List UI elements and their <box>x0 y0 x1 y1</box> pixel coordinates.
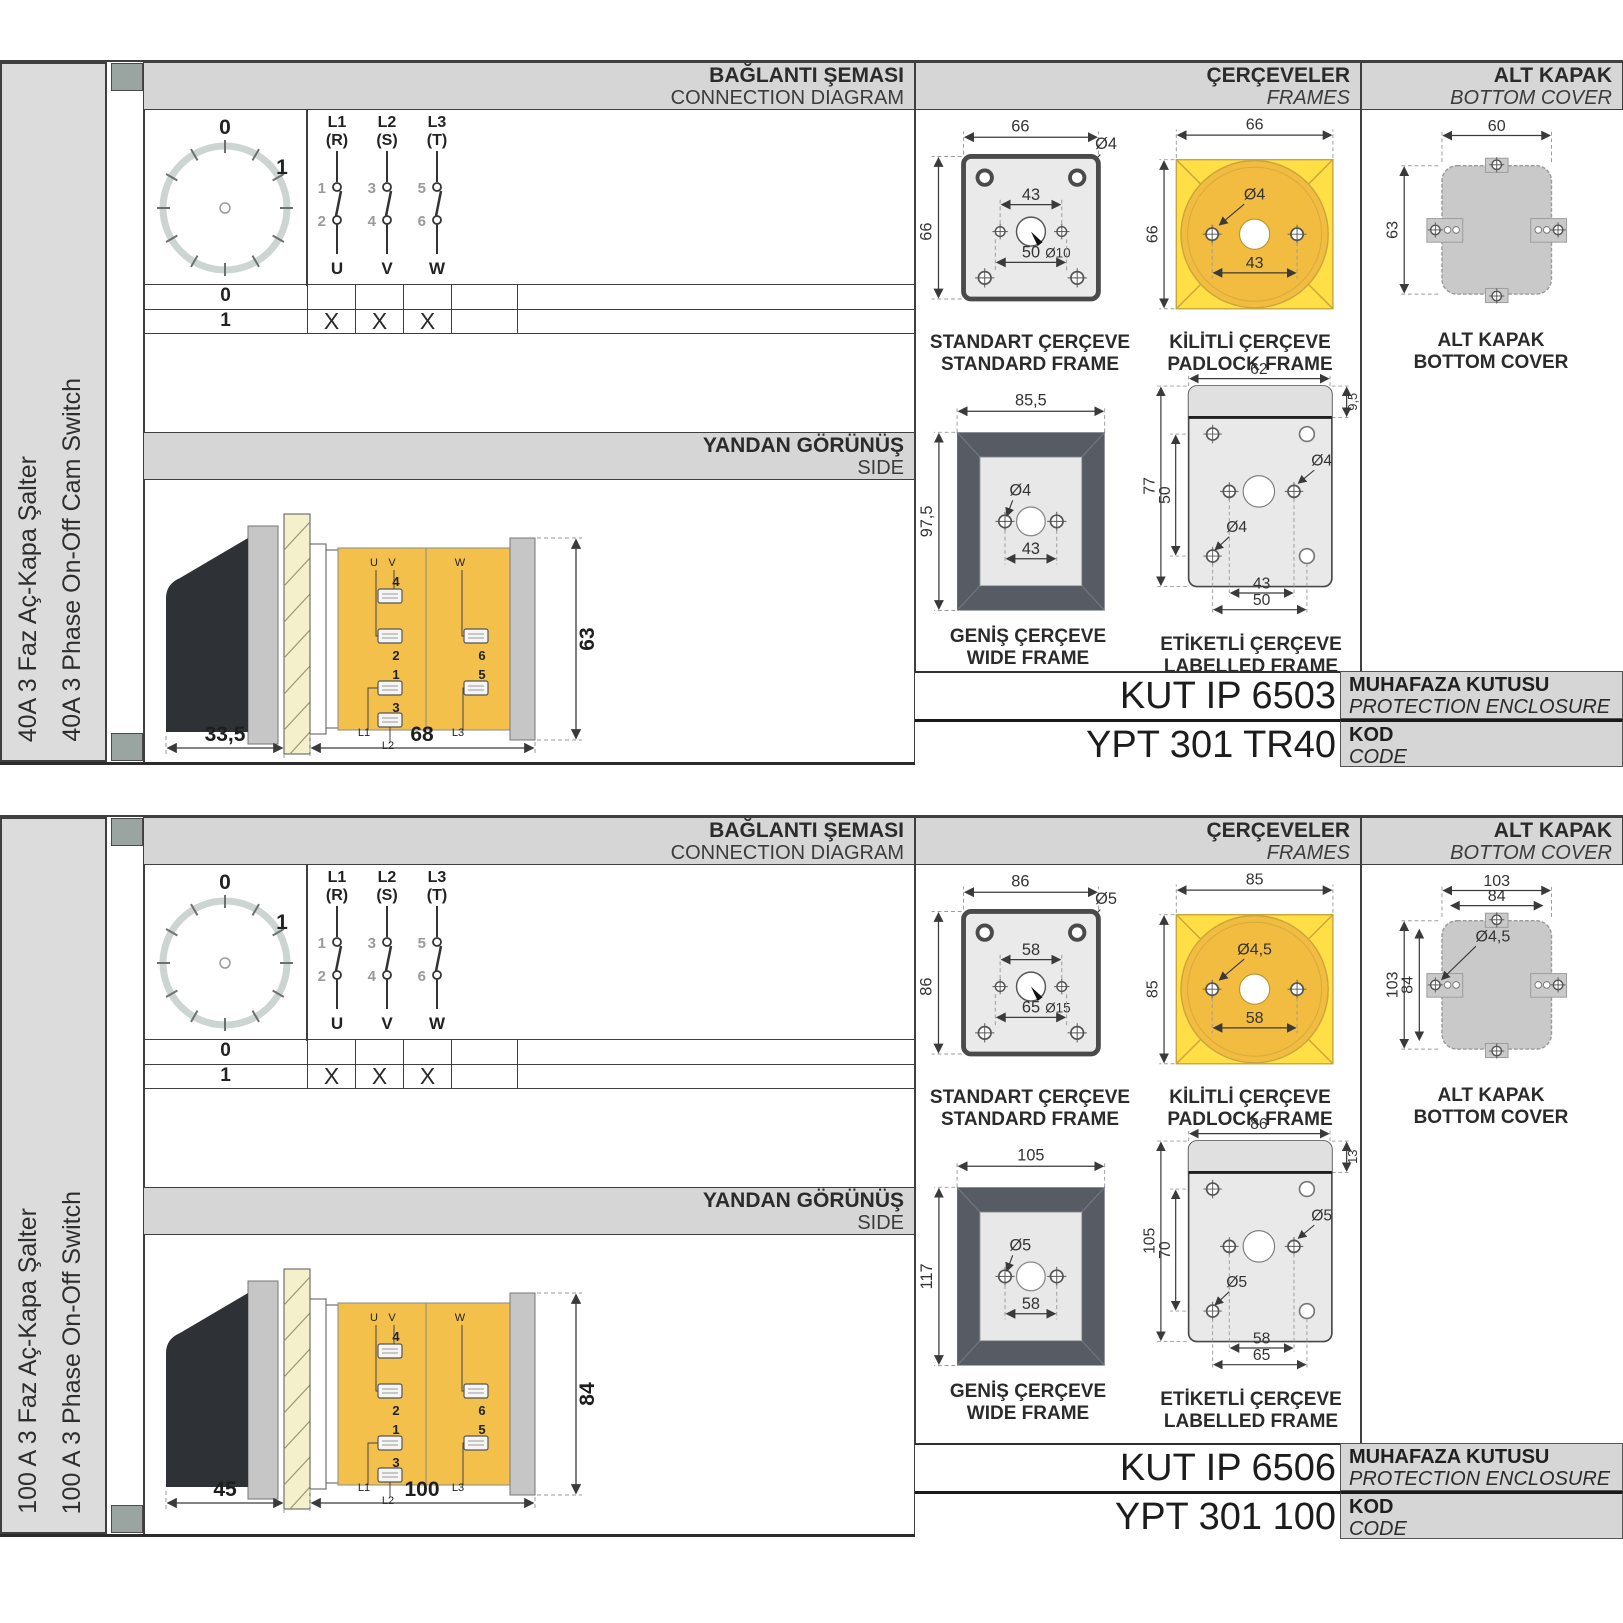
frames-header-en: FRAMES <box>916 842 1350 864</box>
svg-text:60: 60 <box>1488 117 1506 135</box>
svg-text:U: U <box>370 557 378 569</box>
svg-text:68: 68 <box>410 723 434 746</box>
product-section: 100 A 3 Faz Aç-Kapa Şalter 100 A 3 Phase… <box>0 815 1623 1537</box>
svg-text:58: 58 <box>1246 1009 1264 1027</box>
svg-text:66: 66 <box>1143 225 1161 243</box>
connection-header: BAĞLANTI ŞEMASI CONNECTION DIAGRAM <box>143 817 915 865</box>
spacer-inner <box>326 550 338 728</box>
wide-frame-caption: GENİŞ ÇERÇEVE WIDE FRAME <box>916 1381 1140 1425</box>
connection-header-en: CONNECTION DIAGRAM <box>144 87 904 109</box>
svg-text:L3: L3 <box>452 1482 464 1494</box>
standard-frame-caption: STANDART ÇERÇEVE STANDARD FRAME <box>918 332 1142 376</box>
svg-text:43: 43 <box>1246 254 1264 272</box>
table-row-0: 0 <box>144 285 914 309</box>
table-cell <box>404 285 452 309</box>
svg-text:L2: L2 <box>378 114 397 131</box>
padlock-frame-figure: 66 66 Ø4 43 <box>1148 116 1348 326</box>
labelled-frame-figure: 62 9,5 77 50 Ø4 Ø4 43 50 <box>1142 362 1360 630</box>
svg-text:4: 4 <box>392 1329 400 1344</box>
frames-header: ÇERÇEVELER FRAMES <box>915 817 1361 865</box>
cover-dim-w2: 84 <box>1451 887 1542 906</box>
table-cell <box>308 285 356 309</box>
cover-header: ALT KAPAK BOTTOM COVER <box>1361 817 1623 865</box>
product-title-en: 40A 3 Phase On-Off Cam Switch <box>58 378 87 742</box>
svg-text:V: V <box>381 1014 393 1033</box>
svg-text:84: 84 <box>576 1382 599 1406</box>
svg-text:70: 70 <box>1157 1241 1174 1259</box>
svg-text:Ø4,5: Ø4,5 <box>1237 940 1272 958</box>
svg-text:W: W <box>429 1014 446 1033</box>
product-title-en: 100 A 3 Phase On-Off Switch <box>58 1191 87 1514</box>
svg-text:L2: L2 <box>382 1495 394 1507</box>
registration-mark-bottom <box>111 733 143 761</box>
svg-text:Ø4: Ø4 <box>1311 453 1332 470</box>
svg-text:Ø4: Ø4 <box>1009 482 1031 500</box>
side-view-header-tr: YANDAN GÖRÜNÜŞ <box>144 1190 904 1212</box>
table-row-1: 1 X X X <box>144 309 914 333</box>
svg-text:Ø4: Ø4 <box>1095 135 1117 153</box>
svg-text:45: 45 <box>213 1478 237 1501</box>
svg-text:6: 6 <box>418 213 426 230</box>
table-cell-filler <box>518 310 914 333</box>
svg-text:2: 2 <box>318 213 326 230</box>
svg-text:Ø4: Ø4 <box>1244 185 1265 203</box>
switch-handle <box>166 1293 248 1487</box>
svg-text:L2: L2 <box>378 869 397 886</box>
svg-text:L3: L3 <box>452 727 464 739</box>
svg-text:(S): (S) <box>376 887 397 904</box>
frames-header-tr: ÇERÇEVELER <box>916 65 1350 87</box>
pole-l2: L2 (S) V 3 4 <box>368 114 398 278</box>
table-cell-spare <box>452 285 518 309</box>
dial-position-1: 1 <box>276 156 288 179</box>
svg-text:66: 66 <box>1246 115 1264 133</box>
svg-text:85: 85 <box>1246 870 1264 888</box>
spacer <box>310 544 326 734</box>
cover-header-en: BOTTOM COVER <box>1362 842 1612 864</box>
svg-text:V: V <box>381 259 393 278</box>
svg-text:3: 3 <box>392 700 399 715</box>
svg-text:W: W <box>429 259 446 278</box>
cover-dim-h2: 84 <box>1399 930 1420 1040</box>
connection-header-tr: BAĞLANTI ŞEMASI <box>144 820 904 842</box>
pole-l2: L2 (S) V 3 4 <box>368 869 398 1033</box>
standard-frame-figure: 66 Ø4 66 43 Ø10 50 <box>920 116 1140 326</box>
standard-frame-figure: 86 Ø5 86 58 Ø15 65 <box>920 871 1140 1081</box>
panel-plate-hatched <box>284 1269 310 1509</box>
wide-frame-caption: GENİŞ ÇERÇEVE WIDE FRAME <box>916 626 1140 670</box>
table-cell <box>308 1040 356 1064</box>
frames-header-en: FRAMES <box>916 87 1350 109</box>
connection-header-en: CONNECTION DIAGRAM <box>144 842 904 864</box>
switching-table: 0 1 X X X <box>143 284 915 334</box>
contact-diagram: L1 (R) U 1 2 L2 (S) V 3 4 L3 (T) <box>312 112 487 284</box>
table-cell-filler <box>518 285 914 309</box>
labelled-frame-caption: ETİKETLİ ÇERÇEVE LABELLED FRAME <box>1136 1389 1366 1433</box>
switch-handle <box>166 538 248 732</box>
svg-text:97,5: 97,5 <box>918 506 936 538</box>
svg-text:50: 50 <box>1253 592 1271 609</box>
padlock-frame-figure: 85 85 Ø4,5 58 <box>1148 871 1348 1081</box>
bottom-cover-figure: 103 84 103 84 Ø4,5 <box>1374 873 1610 1077</box>
svg-text:6: 6 <box>478 1403 485 1418</box>
svg-text:V: V <box>388 1312 396 1324</box>
svg-text:86: 86 <box>1250 1116 1268 1133</box>
bottom-cover-figure: 60 63 <box>1374 118 1610 322</box>
svg-text:43: 43 <box>1253 575 1271 592</box>
svg-text:84: 84 <box>1488 887 1506 905</box>
cover-header-en: BOTTOM COVER <box>1362 87 1612 109</box>
panel-plate-hatched <box>284 514 310 754</box>
dial-center <box>220 203 230 213</box>
svg-text:5: 5 <box>418 935 426 952</box>
labelled-frame-figure: 86 13 105 70 Ø5 Ø5 58 65 <box>1142 1117 1360 1385</box>
divider-cover <box>1360 108 1362 671</box>
pole-l3: L3 (T) W 5 6 <box>418 114 448 278</box>
table-row-0: 0 <box>144 1040 914 1064</box>
svg-text:58: 58 <box>1022 1295 1040 1313</box>
row-label: 0 <box>144 1040 308 1064</box>
svg-text:117: 117 <box>918 1263 936 1289</box>
table-cell-spare <box>452 1065 518 1088</box>
side-view-header-en: SIDE <box>144 1212 904 1234</box>
side-view-header: YANDAN GÖRÜNÜŞ SIDE <box>143 432 915 480</box>
row-label: 1 <box>144 310 308 333</box>
side-view-header: YANDAN GÖRÜNÜŞ SIDE <box>143 1187 915 1235</box>
table-cell <box>356 1040 404 1064</box>
frames-header-tr: ÇERÇEVELER <box>916 820 1350 842</box>
enclosure-label: MUHAFAZA KUTUSU PROTECTION ENCLOSURE <box>1340 671 1623 719</box>
svg-text:13: 13 <box>1345 1150 1360 1164</box>
svg-text:65: 65 <box>1253 1347 1271 1364</box>
svg-text:5: 5 <box>478 1422 485 1437</box>
cover-header: ALT KAPAK BOTTOM COVER <box>1361 62 1623 110</box>
table-cell <box>404 1040 452 1064</box>
spacer <box>310 1299 326 1489</box>
svg-text:86: 86 <box>1011 872 1029 890</box>
svg-text:50: 50 <box>1157 486 1174 504</box>
svg-text:1: 1 <box>392 667 399 682</box>
switch-body: U V W 4 2 1 3 6 5 L1 L2 L3 <box>338 1303 510 1507</box>
svg-text:85: 85 <box>1143 980 1161 998</box>
margin-gutter <box>109 817 143 1534</box>
rear-cap <box>510 538 535 740</box>
svg-text:2: 2 <box>392 1403 399 1418</box>
row-label: 1 <box>144 1065 308 1088</box>
svg-text:5: 5 <box>478 667 485 682</box>
svg-text:L2: L2 <box>382 740 394 752</box>
svg-text:L1: L1 <box>358 727 370 739</box>
mount-plate <box>248 1281 278 1499</box>
svg-text:1: 1 <box>318 935 326 952</box>
svg-text:(S): (S) <box>376 132 397 149</box>
product-title-tr: 40A 3 Faz Aç-Kapa Şalter <box>14 456 43 742</box>
side-view-header-tr: YANDAN GÖRÜNÜŞ <box>144 435 904 457</box>
svg-text:L3: L3 <box>428 114 447 131</box>
switch-dial-figure: 0 1 <box>143 114 308 279</box>
svg-text:6: 6 <box>478 648 485 663</box>
table-cell: X <box>404 310 452 333</box>
svg-text:63: 63 <box>1384 221 1402 239</box>
svg-text:W: W <box>455 1312 466 1324</box>
bottom-cover-caption: ALT KAPAK BOTTOM COVER <box>1366 1085 1616 1129</box>
svg-text:(R): (R) <box>326 132 348 149</box>
row-label: 0 <box>144 285 308 309</box>
dial-position-0: 0 <box>219 871 231 894</box>
registration-mark-top <box>111 63 143 91</box>
cover-header-tr: ALT KAPAK <box>1362 820 1612 842</box>
svg-text:U: U <box>331 259 343 278</box>
svg-text:V: V <box>388 557 396 569</box>
switch-body: U V W 4 2 1 3 6 5 L1 L2 L3 <box>338 548 510 752</box>
table-cell: X <box>308 1065 356 1088</box>
svg-text:50: 50 <box>1022 244 1040 262</box>
connection-header: BAĞLANTI ŞEMASI CONNECTION DIAGRAM <box>143 62 915 110</box>
table-cell <box>356 285 404 309</box>
connection-header-tr: BAĞLANTI ŞEMASI <box>144 65 904 87</box>
cover-header-tr: ALT KAPAK <box>1362 65 1612 87</box>
product-sidebar: 100 A 3 Faz Aç-Kapa Şalter 100 A 3 Phase… <box>0 817 107 1534</box>
table-cell: X <box>356 1065 404 1088</box>
svg-text:3: 3 <box>368 935 376 952</box>
registration-mark-top <box>111 818 143 846</box>
dial-position-1: 1 <box>276 911 288 934</box>
standard-frame-caption: STANDART ÇERÇEVE STANDARD FRAME <box>918 1087 1142 1131</box>
table-cell-spare <box>452 310 518 333</box>
svg-text:L1: L1 <box>328 869 347 886</box>
svg-text:43: 43 <box>1022 186 1040 204</box>
svg-text:4: 4 <box>368 213 377 230</box>
side-view-figure: U V W 4 2 1 3 6 5 L1 L2 L3 63 <box>150 486 810 762</box>
registration-mark-bottom <box>111 1505 143 1533</box>
enclosure-code: KUT IP 6506 <box>915 1443 1340 1491</box>
svg-text:Ø5: Ø5 <box>1009 1237 1031 1255</box>
bottom-cover-caption: ALT KAPAK BOTTOM COVER <box>1366 330 1616 374</box>
svg-text:W: W <box>455 557 466 569</box>
table-cell-spare <box>452 1040 518 1064</box>
svg-text:9,5: 9,5 <box>1345 393 1360 411</box>
svg-text:58: 58 <box>1022 941 1040 959</box>
product-title-tr: 100 A 3 Faz Aç-Kapa Şalter <box>14 1208 43 1514</box>
svg-text:65: 65 <box>1022 999 1040 1017</box>
svg-text:Ø5: Ø5 <box>1311 1208 1332 1225</box>
margin-gutter <box>109 62 143 762</box>
table-cell: X <box>308 310 356 333</box>
contact-diagram: L1 (R) U 1 2 L2 (S) V 3 4 L3 (T) <box>312 867 487 1039</box>
table-cell: X <box>404 1065 452 1088</box>
pole-l1: L1 (R) U 1 2 <box>318 869 348 1033</box>
svg-text:66: 66 <box>918 222 936 240</box>
svg-text:4: 4 <box>368 968 377 985</box>
svg-text:100: 100 <box>404 1478 439 1501</box>
svg-text:43: 43 <box>1022 540 1040 558</box>
table-row-1: 1 X X X <box>144 1064 914 1088</box>
svg-text:U: U <box>331 1014 343 1033</box>
divider-cover <box>1360 863 1362 1443</box>
table-cell: X <box>356 310 404 333</box>
svg-text:85,5: 85,5 <box>1015 391 1047 409</box>
svg-text:2: 2 <box>392 648 399 663</box>
svg-text:58: 58 <box>1253 1330 1271 1347</box>
svg-text:L1: L1 <box>328 114 347 131</box>
svg-text:86: 86 <box>918 977 936 995</box>
enclosure-label: MUHAFAZA KUTUSU PROTECTION ENCLOSURE <box>1340 1443 1623 1491</box>
divider-frames <box>914 817 916 1534</box>
svg-text:Ø4,5: Ø4,5 <box>1476 927 1511 945</box>
svg-text:84: 84 <box>1399 976 1417 994</box>
table-cell-filler <box>518 1040 914 1064</box>
wide-frame-figure: 85,5 97,5 Ø4 43 <box>922 394 1134 622</box>
svg-text:77: 77 <box>1141 477 1158 494</box>
svg-text:3: 3 <box>368 180 376 197</box>
svg-text:(T): (T) <box>427 132 447 149</box>
svg-text:L1: L1 <box>358 1482 370 1494</box>
table-cell-filler <box>518 1065 914 1088</box>
svg-text:(T): (T) <box>427 887 447 904</box>
svg-text:1: 1 <box>392 1422 399 1437</box>
code-label: KOD CODE <box>1340 1491 1623 1539</box>
dial-center <box>220 958 230 968</box>
switch-dial-figure: 0 1 <box>143 869 308 1034</box>
wide-frame-figure: 105 117 Ø5 58 <box>922 1149 1134 1377</box>
code-label: KOD CODE <box>1340 719 1623 767</box>
enclosure-code: KUT IP 6503 <box>915 671 1340 719</box>
svg-text:33,5: 33,5 <box>205 723 246 746</box>
svg-text:63: 63 <box>576 627 599 650</box>
switching-table: 0 1 X X X <box>143 1039 915 1089</box>
svg-text:4: 4 <box>392 574 400 589</box>
product-code: YPT 301 TR40 <box>915 719 1340 767</box>
pole-l3: L3 (T) W 5 6 <box>418 869 448 1033</box>
product-sidebar: 40A 3 Faz Aç-Kapa Şalter 40A 3 Phase On-… <box>0 62 107 762</box>
dial-position-0: 0 <box>219 116 231 139</box>
svg-text:6: 6 <box>418 968 426 985</box>
side-view-figure: U V W 4 2 1 3 6 5 L1 L2 L3 84 <box>150 1241 810 1517</box>
spacer-inner <box>326 1305 338 1483</box>
side-view-header-en: SIDE <box>144 457 904 479</box>
rear-cap <box>510 1293 535 1495</box>
svg-text:5: 5 <box>418 180 426 197</box>
svg-text:(R): (R) <box>326 887 348 904</box>
svg-text:2: 2 <box>318 968 326 985</box>
svg-text:105: 105 <box>1017 1146 1044 1164</box>
svg-text:Ø5: Ø5 <box>1095 890 1117 908</box>
mount-plate <box>248 526 278 744</box>
svg-text:L3: L3 <box>428 869 447 886</box>
svg-text:3: 3 <box>392 1455 399 1470</box>
pole-l1: L1 (R) U 1 2 <box>318 114 348 278</box>
svg-text:105: 105 <box>1141 1227 1158 1253</box>
product-code: YPT 301 100 <box>915 1491 1340 1539</box>
svg-text:62: 62 <box>1250 361 1267 378</box>
svg-text:1: 1 <box>318 180 326 197</box>
product-section: 40A 3 Faz Aç-Kapa Şalter 40A 3 Phase On-… <box>0 60 1623 765</box>
svg-text:U: U <box>370 1312 378 1324</box>
frames-header: ÇERÇEVELER FRAMES <box>915 62 1361 110</box>
svg-text:66: 66 <box>1011 117 1029 135</box>
